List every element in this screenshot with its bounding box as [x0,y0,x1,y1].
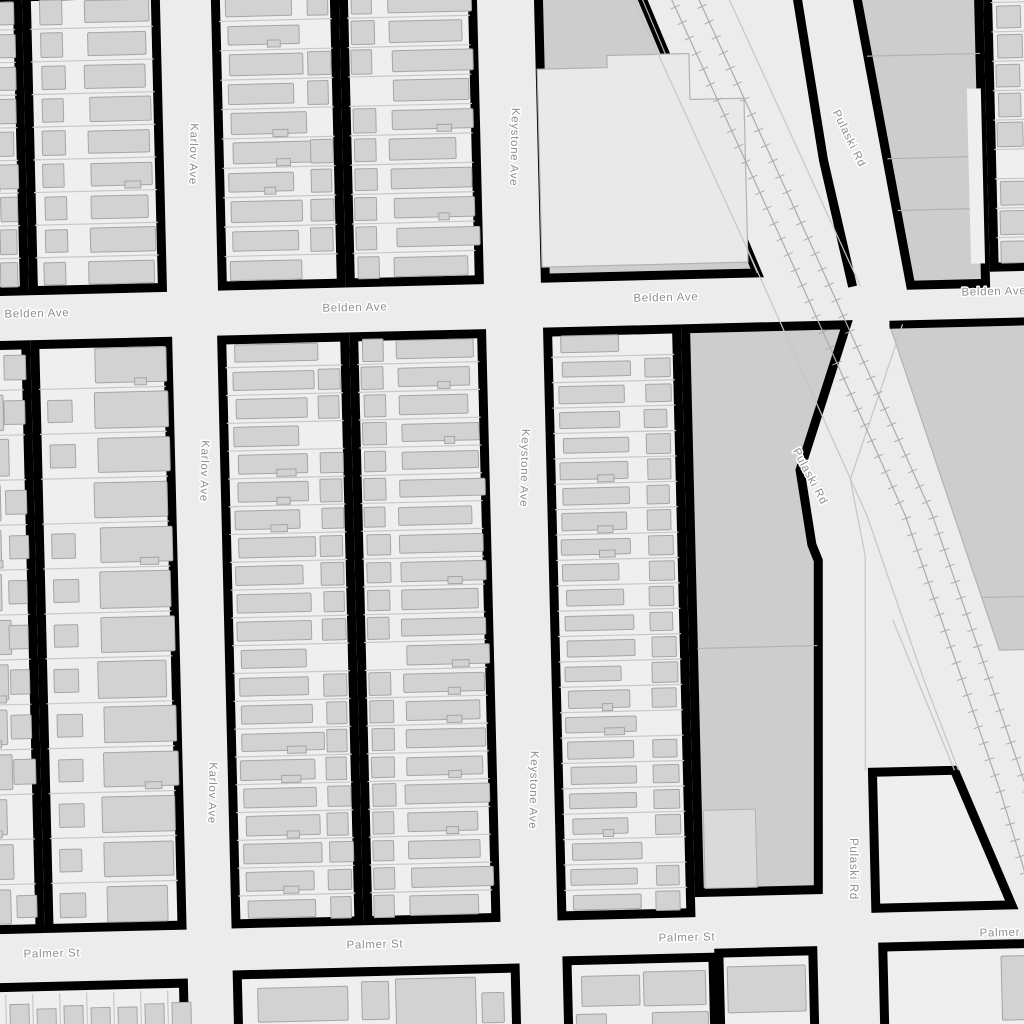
house [402,423,479,442]
house [64,1006,84,1024]
house-extension [125,181,141,188]
garage [326,702,347,724]
garage [327,729,348,752]
garage [310,139,333,163]
house [562,563,619,581]
house-extension [277,497,290,504]
house [0,395,4,432]
garage [652,662,678,683]
house [246,871,314,892]
house [90,227,156,253]
house [407,756,483,776]
house [573,818,628,835]
garage [0,230,17,255]
garage [358,257,380,279]
house [0,845,14,881]
garage [997,122,1023,147]
map-canvas[interactable]: Belden AveBelden AveBelden AveBelden Ave… [0,0,1024,1024]
house [394,197,475,219]
house [240,677,309,697]
house [573,894,641,910]
garage [60,893,86,918]
house-extension [287,746,306,753]
garage [649,586,674,606]
garage [9,625,29,649]
garage [354,139,376,162]
house-extension [267,40,280,47]
garage [362,339,383,362]
house [392,49,473,72]
house-extension [603,829,613,836]
house [0,574,2,611]
garage [373,812,394,835]
house [559,385,625,404]
house [145,1004,165,1024]
house [0,665,9,701]
house [561,335,619,353]
garage [45,230,68,253]
house [394,256,468,277]
garage [0,165,19,190]
garage [373,784,397,807]
house [0,710,8,746]
garage [322,508,344,529]
garage [364,478,386,500]
house-extension [273,129,288,136]
house [568,690,630,709]
house [88,130,150,154]
garage [364,507,385,527]
street-label-palmer-st: Palmer St [979,926,1024,939]
garage [644,409,667,428]
garage [318,395,339,418]
house [389,137,456,160]
building [361,981,389,1020]
house [238,481,309,502]
house [235,565,303,585]
garage [367,562,391,583]
house-extension [598,526,613,533]
garage [318,369,340,390]
house [408,811,478,832]
house [240,759,315,781]
house-extension [284,886,299,893]
garage [0,2,14,25]
garage [1000,181,1024,205]
street-label-palmer-st: Palmer St [658,931,715,944]
garage [0,132,14,157]
house [0,439,9,477]
building [395,977,476,1024]
garage [364,395,386,417]
house-extension [605,728,625,735]
house [95,347,167,383]
garage [4,400,25,424]
house-extension [140,557,158,564]
house [563,437,629,453]
building [1001,955,1024,1020]
house [241,649,306,669]
house [84,64,145,89]
house [408,840,480,859]
house [37,1009,57,1024]
building [482,992,505,1023]
garage [329,841,353,862]
house-extension [449,770,462,777]
garage [59,804,84,828]
house [562,512,627,531]
house-extension [438,381,451,388]
garage [647,509,671,530]
garage [362,422,386,445]
garage [322,619,346,641]
house [91,162,153,186]
garage [310,227,333,251]
house [239,537,316,558]
house [0,890,11,925]
house [225,0,292,17]
house-extension [445,436,455,443]
house [233,370,314,390]
house [244,787,317,808]
house [244,842,323,864]
house [565,615,634,631]
street-label-karlov-ave: Karlov Ave [186,123,200,185]
house [230,260,302,281]
garage [321,562,344,585]
garage [356,227,377,251]
garage [326,757,347,780]
house [0,800,8,836]
house [396,339,473,359]
house [94,481,168,518]
building [652,1011,709,1024]
garage [328,869,352,890]
garage [9,580,28,604]
house [406,728,486,748]
house [103,751,178,787]
garage [370,700,394,723]
house [398,506,472,526]
garage [320,452,343,473]
garage [1000,210,1024,234]
garage [361,367,383,390]
garage [42,131,66,156]
garage [1001,241,1024,263]
house [563,487,630,505]
garage [369,672,391,695]
house [236,398,307,419]
house [248,899,316,918]
garage [9,535,29,559]
house [401,617,486,636]
garage [50,444,76,468]
house [391,167,472,189]
house [0,755,13,791]
garage [655,814,681,834]
street-label-belden-ave: Belden Ave [4,307,69,320]
garage [54,669,79,693]
house-extension [437,124,452,131]
house [407,644,490,665]
house [98,660,167,698]
house [233,230,299,251]
garage [372,728,395,750]
house-extension [448,687,460,694]
house [401,560,486,582]
garage [367,534,391,555]
street-label-palmer-st: Palmer St [346,938,403,951]
house [233,141,312,164]
garage [367,590,390,611]
house-extension [452,660,469,667]
house [234,426,299,447]
house-extension [135,378,147,385]
house [90,96,152,122]
house [235,510,300,530]
house [560,461,628,480]
house-extension [446,826,458,833]
garage [324,591,345,612]
house [397,226,480,246]
house-extension [0,741,2,748]
street-label-keystone-ave: Keystone Ave [526,751,540,830]
garage [351,50,372,75]
garage [998,93,1021,117]
house [567,740,633,759]
house [229,53,303,76]
garage [308,51,332,75]
house [104,841,174,877]
garage [57,714,83,737]
house-extension [145,781,162,788]
house [89,260,155,284]
street-label-palmer-st: Palmer St [23,947,80,960]
garage [373,840,394,861]
house [91,195,148,219]
block-border [890,321,1024,325]
garage [355,169,378,191]
house [118,1007,138,1024]
garage [654,789,680,808]
garage [45,197,67,221]
house [237,593,312,613]
street-label-belden-ave: Belden Ave [961,285,1024,298]
house [398,367,470,387]
garage [14,759,36,784]
garage [42,66,66,90]
house-extension [0,696,7,703]
house-extension [271,525,288,532]
building [258,986,349,1022]
garage [647,485,670,504]
house [400,478,486,497]
house-extension [277,469,297,476]
house [228,25,300,45]
house [565,716,636,733]
house [572,842,642,860]
building [576,1014,607,1024]
house [107,885,168,922]
house [402,450,479,469]
garage [374,895,395,918]
garage [367,617,389,639]
house [237,620,312,641]
house [565,666,621,682]
house [246,815,320,836]
house [241,704,312,724]
garage [351,21,375,45]
garage [364,451,386,472]
house [88,31,147,55]
garage [52,534,76,559]
garage [48,400,73,423]
house-extension [598,475,614,482]
house [235,343,318,362]
garage [327,813,349,836]
garage [10,670,30,695]
house [561,538,630,555]
house [172,1002,192,1024]
house [94,391,168,429]
garage [353,108,376,133]
street-label-pulaski-rd: Pulaski Rd [847,838,859,900]
building [727,965,806,1013]
garage [653,739,678,757]
street-label-keystone-ave: Keystone Ave [507,108,521,187]
garage [42,99,64,123]
garage [652,688,677,708]
garage [53,579,79,602]
garage [54,625,78,648]
house [569,792,636,808]
house [571,868,638,885]
garage [649,561,674,581]
house [229,172,294,192]
street-label-karlov-ave: Karlov Ave [205,762,219,824]
house [399,394,468,415]
house-extension [448,576,462,583]
house [231,112,307,135]
street-label-belden-ave: Belden Ave [633,291,698,304]
garage [649,535,674,555]
house-extension [0,831,2,838]
house-extension [276,159,290,166]
garage [44,262,66,285]
garage [997,34,1022,58]
garage [374,867,395,889]
garage [0,197,17,222]
house-extension [439,213,450,220]
house-extension [447,715,462,722]
house [387,0,471,13]
house [393,78,469,101]
house [392,109,473,130]
street-label-keystone-ave: Keystone Ave [517,429,531,508]
house [101,616,175,653]
garage [311,169,332,192]
garage [4,355,26,380]
garage [60,849,83,872]
house [402,588,479,610]
garage [653,764,679,783]
house [405,783,490,804]
garage [650,612,673,631]
house [567,639,635,657]
garage [328,786,352,807]
garage [311,199,334,221]
house-extension [0,561,3,568]
house [228,83,294,104]
garage [0,99,16,124]
garage [646,434,671,454]
house [91,1007,111,1024]
house [10,1004,30,1024]
house-extension [602,703,612,710]
house [406,700,480,721]
house [242,732,325,751]
house [102,795,176,832]
house [399,533,483,553]
house-extension [265,187,276,194]
garage [646,384,672,402]
house [104,705,177,742]
house-extension [287,831,300,838]
garage [996,6,1020,29]
house [559,411,619,428]
garage [39,0,62,25]
garage [17,895,37,918]
garage [59,759,84,782]
house [389,20,462,43]
house [100,526,173,562]
garage [645,358,671,377]
garage [648,459,672,480]
map-viewport[interactable]: Belden AveBelden AveBelden AveBelden Ave… [0,0,1024,1024]
parcel [703,809,757,888]
garage [320,479,342,502]
house [403,672,484,692]
house-extension [282,775,301,782]
house [571,766,637,785]
garage [40,33,62,58]
garage [0,34,16,58]
house [566,589,623,606]
house-extension [599,550,615,557]
building [643,970,706,1006]
house [98,437,171,473]
house [562,361,631,377]
garage [371,757,394,778]
garage [996,64,1020,87]
street-label-belden-ave: Belden Ave [322,301,387,314]
garage [11,715,32,739]
garage [652,636,677,657]
garage [0,262,18,287]
garage [0,67,16,90]
house [410,894,479,915]
garage [5,490,27,514]
garage [354,197,376,220]
garage [320,535,343,556]
garage [323,674,347,697]
garage [307,80,328,104]
garage [43,164,65,188]
house [231,200,303,223]
building [581,975,640,1006]
garage [656,865,679,885]
house [238,454,308,475]
